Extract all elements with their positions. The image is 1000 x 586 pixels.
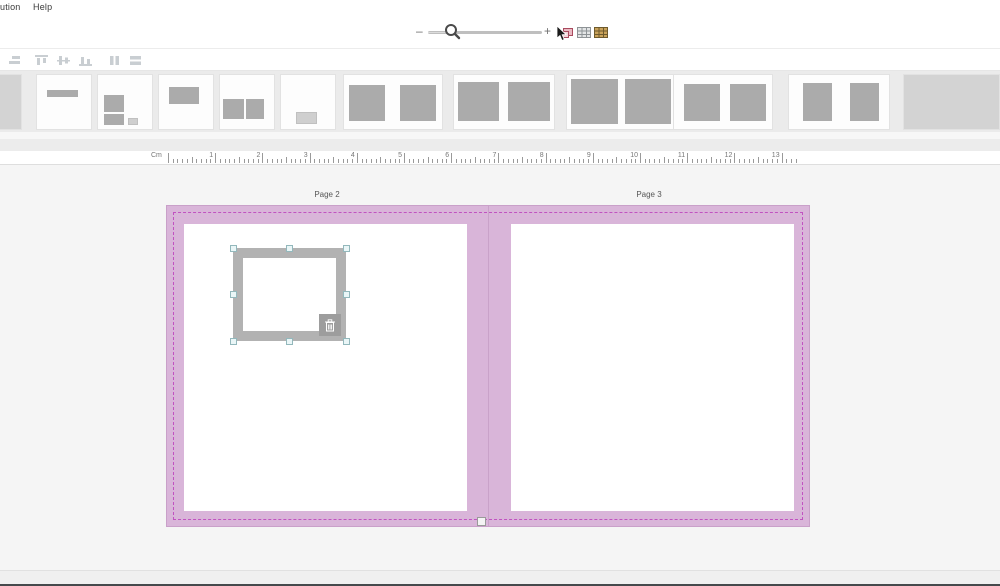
- ruler-tick: [621, 159, 622, 163]
- zoom-in-button[interactable]: +: [544, 25, 551, 37]
- ruler-tick: [229, 159, 230, 163]
- ruler-tick: [583, 159, 584, 163]
- template-box: [400, 85, 436, 121]
- ruler-tick: [739, 159, 740, 163]
- ruler-tick: [494, 159, 495, 163]
- ruler-tick: [513, 159, 514, 163]
- ruler-tick: [536, 159, 537, 163]
- ruler-tick: [461, 159, 462, 163]
- ruler-tick: [602, 159, 603, 163]
- ruler-tick: [446, 159, 447, 163]
- selection-handle[interactable]: [286, 338, 293, 345]
- template-box: [803, 83, 832, 121]
- template-thumbnail-photo-stack[interactable]: [97, 74, 153, 130]
- ruler-tick: [649, 159, 650, 163]
- template-box: [296, 112, 317, 124]
- template-box: [47, 90, 78, 97]
- template-box: [104, 114, 124, 124]
- ruler-tick: [432, 159, 433, 163]
- zoom-slider-handle-magnifier-icon[interactable]: [444, 23, 461, 40]
- ruler-tick: [640, 153, 641, 163]
- ruler-tick: [579, 159, 580, 163]
- ruler-number: 4: [345, 152, 355, 159]
- template-box: [571, 79, 617, 124]
- ruler-number: 11: [675, 152, 685, 159]
- ruler-tick: [465, 159, 466, 163]
- ruler-tick: [635, 159, 636, 163]
- ruler-tick: [234, 159, 235, 163]
- ruler-tick: [281, 159, 282, 163]
- menu-item-help[interactable]: Help: [33, 2, 52, 12]
- ruler-tick: [730, 159, 731, 163]
- ruler-tick: [758, 157, 759, 163]
- ruler-tick: [413, 159, 414, 163]
- ruler-number: 3: [298, 152, 308, 159]
- ruler-tick: [390, 159, 391, 163]
- ruler-tick: [201, 159, 202, 163]
- ruler-tick: [645, 159, 646, 163]
- ruler-tick: [725, 159, 726, 163]
- ruler-tick: [546, 153, 547, 163]
- ruler-tick: [560, 159, 561, 163]
- ruler-tick: [687, 153, 688, 163]
- ruler-tick: [404, 153, 405, 163]
- template-box: [458, 82, 499, 121]
- ruler-tick: [607, 159, 608, 163]
- template-box: [0, 75, 21, 129]
- template-box: [904, 75, 999, 129]
- distribute-horizontal-icon[interactable]: [108, 54, 121, 67]
- ruler-tick: [527, 159, 528, 163]
- ruler-tick: [409, 159, 410, 163]
- ruler-tick: [244, 159, 245, 163]
- ruler-tick: [385, 159, 386, 163]
- ruler: Cm 12345678910111213: [0, 151, 1000, 165]
- template-thumbnail-small-corner[interactable]: [280, 74, 336, 130]
- ruler-tick: [442, 159, 443, 163]
- ruler-number: 10: [628, 152, 638, 159]
- ruler-tick: [295, 159, 296, 163]
- template-thumbnail-spread-two-medium-b[interactable]: [673, 74, 773, 130]
- ruler-tick: [678, 159, 679, 163]
- ruler-tick: [277, 159, 278, 163]
- ruler-tick: [555, 159, 556, 163]
- ruler-tick: [239, 157, 240, 163]
- ruler-tick: [182, 159, 183, 163]
- ruler-tick: [654, 159, 655, 163]
- ruler-tick: [706, 159, 707, 163]
- selection-handle[interactable]: [286, 245, 293, 252]
- ruler-tick: [305, 159, 306, 163]
- ruler-tick: [272, 159, 273, 163]
- ruler-tick: [366, 159, 367, 163]
- ruler-tick: [598, 159, 599, 163]
- ruler-number: 5: [392, 152, 402, 159]
- ruler-tick: [744, 159, 745, 163]
- selection-handle[interactable]: [343, 291, 350, 298]
- ruler-tick: [593, 153, 594, 163]
- ruler-tick: [673, 159, 674, 163]
- ruler-tick: [796, 159, 797, 163]
- template-thumbnail-spread-two-xl[interactable]: [566, 74, 678, 130]
- ruler-tick: [475, 157, 476, 163]
- ruler-tick: [791, 159, 792, 163]
- selection-handle[interactable]: [343, 245, 350, 252]
- selection-handle[interactable]: [230, 245, 237, 252]
- mouse-cursor-icon: [556, 26, 568, 42]
- zoom-out-button[interactable]: –: [416, 25, 423, 37]
- menu-item-ution[interactable]: ution: [0, 2, 21, 12]
- ruler-tick: [616, 157, 617, 163]
- template-box: [730, 84, 766, 121]
- ruler-tick: [498, 153, 499, 163]
- ruler-tick: [697, 159, 698, 163]
- ruler-tick: [310, 153, 311, 163]
- ruler-tick: [376, 159, 377, 163]
- ruler-tick: [418, 159, 419, 163]
- ruler-tick: [786, 159, 787, 163]
- template-thumbnail-spread-two-portrait[interactable]: [788, 74, 890, 130]
- template-box: [223, 99, 245, 119]
- template-thumbnail-title-line[interactable]: [36, 74, 92, 130]
- ruler-tick: [262, 153, 263, 163]
- page-label-left: Page 2: [166, 190, 488, 199]
- ruler-tick: [503, 159, 504, 163]
- template-thumbnail-spread-two-large[interactable]: [453, 74, 555, 130]
- page-3-area[interactable]: [511, 224, 794, 511]
- ruler-tick: [541, 159, 542, 163]
- ruler-tick: [168, 153, 169, 163]
- template-box: [128, 118, 138, 125]
- ruler-tick: [574, 159, 575, 163]
- ruler-tick: [711, 157, 712, 163]
- ruler-number: 6: [439, 152, 449, 159]
- photobook-editor-window: utionHelp – +: [0, 0, 1000, 586]
- ruler-tick: [428, 157, 429, 163]
- ruler-tick: [753, 159, 754, 163]
- align-bottom-icon[interactable]: [79, 54, 92, 67]
- template-thumbnail-filled-page[interactable]: [0, 74, 22, 130]
- ruler-tick: [531, 159, 532, 163]
- template-box: [169, 87, 200, 103]
- ruler-tick: [291, 159, 292, 163]
- ruler-number: 9: [581, 152, 591, 159]
- photo-grid-icon[interactable]: [594, 27, 608, 38]
- template-box: [684, 84, 720, 121]
- ruler-tick: [352, 159, 353, 163]
- ruler-tick: [215, 153, 216, 163]
- ruler-tick: [451, 153, 452, 163]
- ruler-tick: [569, 157, 570, 163]
- page-label-right: Page 3: [488, 190, 810, 199]
- delete-frame-button[interactable]: [319, 314, 341, 336]
- ruler-tick: [248, 159, 249, 163]
- ruler-tick: [782, 153, 783, 163]
- ruler-tick: [324, 159, 325, 163]
- template-thumbnail-banner-top[interactable]: [158, 74, 214, 130]
- ruler-tick: [484, 159, 485, 163]
- selection-handle[interactable]: [343, 338, 350, 345]
- align-middle-icon[interactable]: [57, 54, 70, 67]
- ruler-tick: [668, 159, 669, 163]
- ruler-tick: [767, 159, 768, 163]
- ruler-tick: [192, 157, 193, 163]
- selection-handle[interactable]: [230, 338, 237, 345]
- ruler-tick: [456, 159, 457, 163]
- ruler-tick: [664, 157, 665, 163]
- ruler-tick: [399, 159, 400, 163]
- ruler-tick: [338, 159, 339, 163]
- ruler-tick: [343, 159, 344, 163]
- ruler-tick: [749, 159, 750, 163]
- ruler-tick: [357, 153, 358, 163]
- trash-icon: [324, 319, 336, 332]
- grid-layout-icon[interactable]: [577, 27, 591, 38]
- ruler-tick: [564, 159, 565, 163]
- ruler-tick: [588, 159, 589, 163]
- ruler-tick: [763, 159, 764, 163]
- ruler-tick: [347, 159, 348, 163]
- template-box: [508, 82, 550, 121]
- ruler-tick: [692, 159, 693, 163]
- template-strip: [0, 71, 1000, 132]
- ruler-number: 7: [486, 152, 496, 159]
- ruler-tick: [187, 159, 188, 163]
- template-box: [349, 85, 385, 121]
- ruler-tick: [177, 159, 178, 163]
- ruler-tick: [286, 157, 287, 163]
- ruler-tick: [517, 159, 518, 163]
- ruler-tick: [626, 159, 627, 163]
- ruler-tick: [206, 159, 207, 163]
- template-box: [104, 95, 124, 112]
- ruler-tick: [720, 159, 721, 163]
- strip-gap: [0, 132, 1000, 139]
- ruler-tick: [716, 159, 717, 163]
- ruler-tick: [225, 159, 226, 163]
- selection-handle[interactable]: [230, 291, 237, 298]
- spine-fold-line: [488, 206, 489, 526]
- ruler-tick: [220, 159, 221, 163]
- ruler-tick: [437, 159, 438, 163]
- selected-photo-frame[interactable]: [233, 248, 346, 341]
- ruler-number: 8: [534, 152, 544, 159]
- ruler-tick: [682, 159, 683, 163]
- template-thumbnail-filled-spread[interactable]: [903, 74, 1000, 130]
- template-box: [246, 99, 264, 119]
- align-right-icon[interactable]: [8, 54, 21, 67]
- ruler-tick: [253, 159, 254, 163]
- ruler-tick: [701, 159, 702, 163]
- ruler-tick: [470, 159, 471, 163]
- ruler-number: 2: [250, 152, 260, 159]
- ruler-tick: [772, 159, 773, 163]
- ruler-tick: [659, 159, 660, 163]
- ruler-tick: [328, 159, 329, 163]
- ruler-tick: [314, 159, 315, 163]
- ruler-unit-label: Cm: [151, 152, 162, 159]
- ruler-number: 13: [770, 152, 780, 159]
- ruler-tick: [508, 159, 509, 163]
- ruler-tick: [173, 159, 174, 163]
- ruler-number: 12: [722, 152, 732, 159]
- ruler-tick: [734, 153, 735, 163]
- menu-bar: utionHelp: [0, 0, 1000, 16]
- ruler-tick: [371, 159, 372, 163]
- bottom-bar: [0, 570, 1000, 584]
- ruler-tick: [333, 157, 334, 163]
- ruler-tick: [267, 159, 268, 163]
- template-scrollbar-track[interactable]: [0, 139, 1000, 151]
- ruler-tick: [423, 159, 424, 163]
- ruler-tick: [300, 159, 301, 163]
- ruler-tick: [550, 159, 551, 163]
- ruler-tick: [319, 159, 320, 163]
- canvas[interactable]: Page 2 Page 3: [0, 165, 1000, 570]
- ruler-number: 1: [203, 152, 213, 159]
- ruler-tick: [612, 159, 613, 163]
- distribute-vertical-icon[interactable]: [129, 54, 142, 67]
- ruler-tick: [210, 159, 211, 163]
- template-thumbnail-two-boxes[interactable]: [219, 74, 275, 130]
- ruler-tick: [395, 159, 396, 163]
- ruler-tick: [480, 159, 481, 163]
- ruler-tick: [362, 159, 363, 163]
- template-box: [625, 79, 671, 124]
- ruler-tick: [258, 159, 259, 163]
- align-toolbar: [0, 48, 1000, 71]
- ruler-tick: [631, 159, 632, 163]
- ruler-tick: [489, 159, 490, 163]
- template-thumbnail-spread-two-medium[interactable]: [343, 74, 443, 130]
- ruler-tick: [522, 157, 523, 163]
- ruler-tick: [196, 159, 197, 163]
- spread-bottom-handle[interactable]: [477, 517, 486, 526]
- ruler-tick: [777, 159, 778, 163]
- align-top-icon[interactable]: [35, 54, 48, 67]
- template-box: [850, 83, 879, 121]
- ruler-tick: [380, 157, 381, 163]
